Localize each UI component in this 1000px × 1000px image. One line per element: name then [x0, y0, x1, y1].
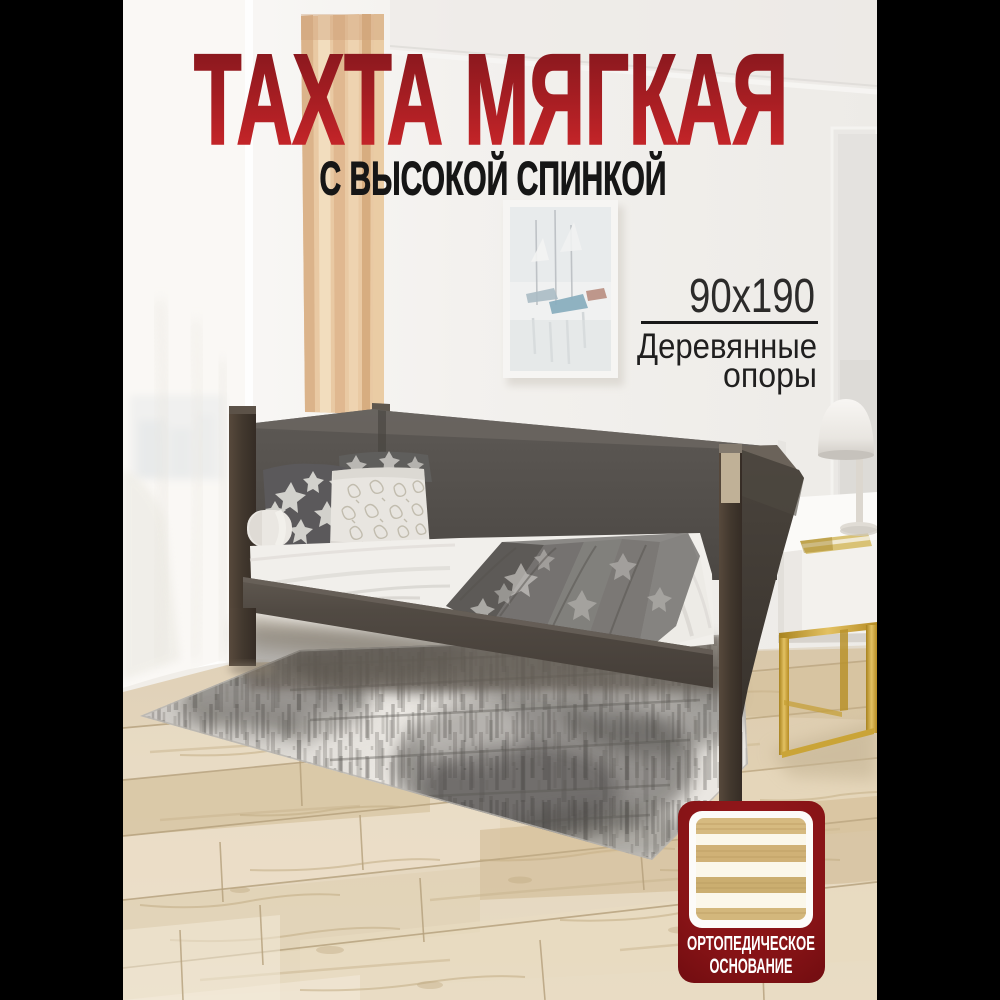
svg-text:ОРТОПЕДИЧЕСКОЕ: ОРТОПЕДИЧЕСКОЕ [687, 933, 815, 955]
svg-text:ОСНОВАНИЕ: ОСНОВАНИЕ [710, 955, 793, 978]
svg-text:90x190: 90x190 [689, 270, 815, 323]
svg-text:ТАХТА МЯГКАЯ: ТАХТА МЯГКАЯ [194, 29, 788, 172]
svg-text:опоры: опоры [723, 356, 817, 395]
svg-text:С ВЫСОКОЙ СПИНКОЙ: С ВЫСОКОЙ СПИНКОЙ [320, 152, 667, 205]
